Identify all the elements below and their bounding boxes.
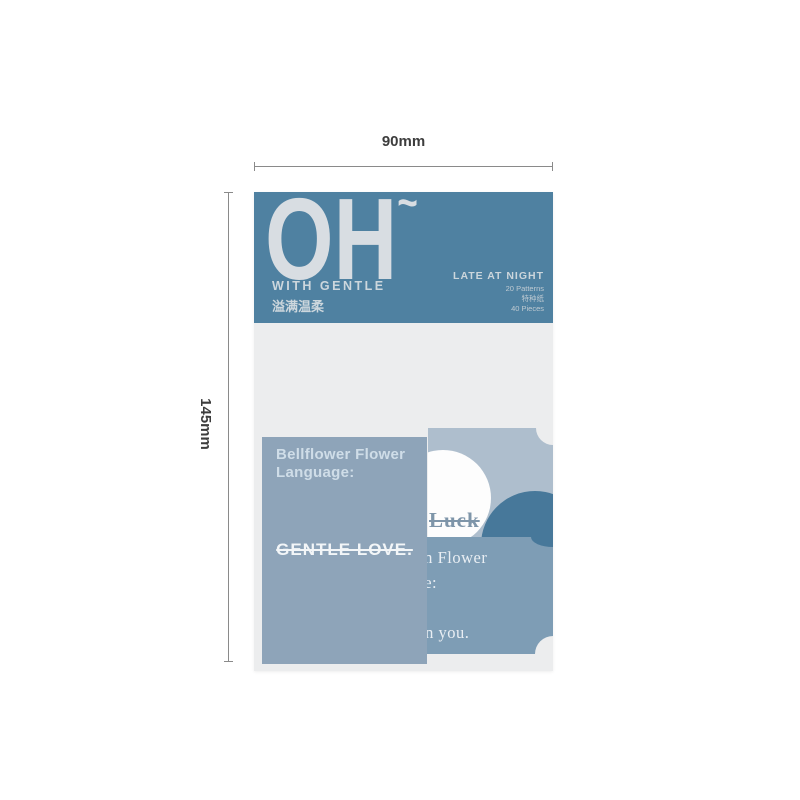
tilde-mark: ~ (397, 176, 418, 228)
memo-card-bellflower: Bellflower Flower Language: GENTLE LOVE. (262, 437, 427, 664)
geranium-line-1: Geranium Flower (420, 548, 487, 568)
width-dimension-line (254, 166, 553, 167)
height-dimension-label: 145mm (196, 388, 214, 460)
product-photo: 90mm 145mm OH~ WITH GENTLE 溢满温柔 LATE AT … (0, 0, 800, 800)
bellflower-line-1: Bellflower Flower (276, 446, 405, 463)
corner-notch (536, 428, 553, 445)
package-header: OH~ WITH GENTLE 溢满温柔 LATE AT NIGHT 20 Pa… (254, 192, 553, 323)
series-name: LATE AT NIGHT (453, 270, 544, 282)
geranium-line-3: in you. (420, 623, 469, 643)
subtitle-english: WITH GENTLE (272, 279, 386, 293)
memo-card-luck: Luck (428, 428, 553, 554)
corner-notch (535, 636, 553, 654)
height-dimension-line (228, 192, 229, 662)
luck-word: Luck (429, 508, 480, 533)
pieces-count: 40 Pieces (453, 304, 544, 314)
width-dimension-label: 90mm (254, 133, 553, 150)
subtitle-chinese: 溢满温柔 (272, 296, 324, 315)
header-right-block: LATE AT NIGHT 20 Patterns 特种纸 40 Pieces (453, 270, 544, 314)
patterns-count: 20 Patterns (453, 284, 544, 294)
gentle-love-message: GENTLE LOVE. (262, 540, 427, 560)
teal-scallop-graphic (531, 537, 553, 547)
bellflower-line-2: Language: (276, 464, 355, 481)
memo-card-geranium: Geranium Flower Language: in you. (420, 537, 553, 654)
paper-type: 特种纸 (453, 294, 544, 304)
memo-pad-package: OH~ WITH GENTLE 溢满温柔 LATE AT NIGHT 20 Pa… (254, 192, 553, 671)
